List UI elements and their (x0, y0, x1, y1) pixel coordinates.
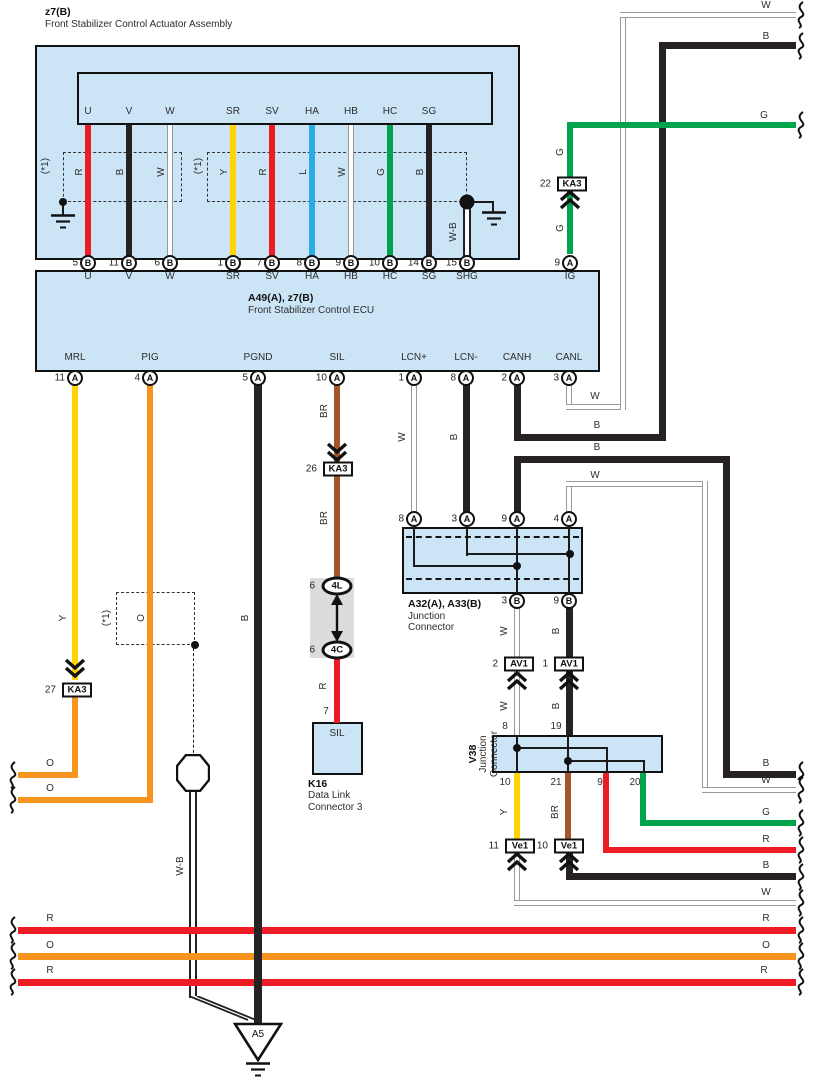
label-sv-17: SV (265, 107, 278, 117)
a32-int-2h (466, 553, 571, 555)
pin-circle-1B-3: B (225, 255, 241, 271)
label-connector-6: Connector (408, 623, 454, 633)
connector-num-av1-1: 1 (532, 659, 548, 670)
junction-dot-5 (513, 744, 521, 752)
pin-circle-7B-4: B (264, 255, 280, 271)
label-w-71: W (761, 1, 770, 11)
label-connector-12: Connector (490, 731, 500, 777)
label-g-54: G (556, 148, 566, 156)
chevron-down-sil (325, 442, 349, 462)
label-sr-25: SR (226, 272, 240, 282)
ground-symbol-1 (49, 214, 77, 231)
wire-j3b-w (514, 608, 520, 658)
wire-lcnm-b (463, 382, 470, 514)
pin-number-11A-11: 11 (49, 373, 65, 384)
label-hc-29: HC (383, 272, 397, 282)
wire-hb-w (348, 125, 354, 258)
wire-v38-br (565, 773, 571, 841)
chevron-up-av1-1 (557, 671, 581, 691)
pin-circle-10A-14: A (329, 370, 345, 386)
break-r-right (792, 835, 810, 865)
v38-int-2h (567, 760, 645, 762)
connector-ve1-10: Ve1 (554, 839, 584, 854)
junction-dot-6 (564, 757, 572, 765)
wire-sil-br-2 (334, 475, 340, 580)
pin-number-1A-15: 1 (388, 373, 404, 384)
label-a49-a-z7-b--2: A49(A), z7(B) (248, 293, 313, 304)
wire-j9a-b-v2 (723, 456, 730, 778)
label-y-68: Y (500, 809, 510, 816)
label-b-72: B (763, 32, 770, 42)
pin-circle-8B-5: B (304, 255, 320, 271)
a32-int-1h (413, 565, 519, 567)
pin-number-6B-2: 6 (144, 258, 160, 269)
break-g-top (792, 110, 810, 140)
break-w-right-1 (792, 775, 810, 805)
label-r-63: R (319, 682, 329, 689)
label-a32-a-a33-b--4: A32(A), A33(B) (408, 599, 481, 610)
label-b-76: B (594, 443, 601, 453)
pin-number-15B-9: 15 (441, 258, 457, 269)
noise-filter-octagon (176, 754, 210, 792)
label-o-59: O (137, 614, 147, 622)
pin-number-3A-20: 3 (441, 514, 457, 525)
connector-num-ve1-10: 10 (532, 841, 548, 852)
junction-dot-4 (566, 550, 574, 558)
chevron-down-mrl (63, 658, 87, 678)
a32-int-2v (466, 527, 468, 556)
pin-number-14B-8: 14 (403, 258, 419, 269)
label-l-46: L (299, 169, 309, 175)
break-g-right (792, 808, 810, 838)
pin-number-11B-1: 11 (103, 258, 119, 269)
label-sg-30: SG (422, 272, 436, 282)
label-w-74: W (590, 392, 599, 402)
pin-circle-11A-11: A (67, 370, 83, 386)
break-w-right-2 (792, 888, 810, 918)
label-y-58: Y (59, 615, 69, 622)
label-9-96: 9 (597, 778, 603, 788)
wire-sr-y (230, 125, 236, 258)
option-dashed-box-1 (63, 152, 182, 202)
wire-bottom-o (12, 953, 804, 960)
pin-circle-3A-18: A (561, 370, 577, 386)
break-r2-right (792, 967, 810, 997)
pin-number-5A-13: 5 (232, 373, 248, 384)
label-19-93: 19 (550, 722, 561, 732)
label-sv-26: SV (265, 272, 278, 282)
wire-canh-b-v1 (514, 382, 521, 439)
wire-v-b (126, 125, 132, 258)
pin-circle-9B-24: B (561, 593, 577, 609)
wire-ka3-27-o-v (72, 694, 78, 778)
label-r-91: R (46, 966, 53, 976)
label-hc-20: HC (383, 107, 397, 117)
double-arrow-shield (329, 594, 345, 642)
label-10-94: 10 (499, 778, 510, 788)
wire-lcnp-w (411, 382, 417, 514)
wire-pgnd-b (254, 384, 262, 1031)
pin-circle-15B-9: B (459, 255, 475, 271)
connector-av1-2: AV1 (504, 657, 534, 672)
connector-num-av1-2: 2 (482, 659, 498, 670)
wire-ve1-10-b-h (566, 873, 804, 880)
connector-ka3-27: KA3 (62, 683, 92, 698)
label-w-64: W (500, 626, 510, 635)
label-b-60: B (241, 615, 251, 622)
connector-num-ka3-22: 22 (535, 179, 551, 190)
v38-int-1h (516, 747, 608, 749)
label-canl-40: CANL (556, 353, 583, 363)
pin-circle-9A-10: A (562, 255, 578, 271)
wire-v38-g-v (640, 773, 646, 826)
wire-ig-g-h (567, 122, 803, 128)
wire-j9a-b-v1 (514, 456, 521, 514)
label-hb-28: HB (344, 272, 358, 282)
label-20-97: 20 (629, 778, 640, 788)
label-y-44: Y (220, 169, 230, 176)
break-w-top (792, 0, 810, 30)
label-b-42: B (116, 169, 126, 176)
label-sil-36: SIL (329, 353, 344, 363)
break-o-left-2 (4, 785, 22, 815)
wire-canl-w-h1 (566, 404, 626, 410)
ground-symbol-a5 (244, 1062, 272, 1079)
pin-circle-8A-19: A (406, 511, 422, 527)
pin-number-4A-22: 4 (543, 514, 559, 525)
wire-canh-b-h2 (659, 42, 804, 49)
pin-number-10A-14: 10 (311, 373, 327, 384)
label-b-78: B (763, 759, 770, 769)
v38-int-1v (516, 735, 518, 773)
label-ig-32: IG (565, 272, 576, 282)
label-b-75: B (594, 421, 601, 431)
ground-point-a5: A5 (233, 1022, 283, 1062)
label-w-66: W (500, 701, 510, 710)
wire-canl-w-v2 (620, 12, 626, 410)
pin-number-9A-21: 9 (491, 514, 507, 525)
wire-wb-octagon (189, 790, 197, 998)
label-w-56: W (398, 432, 408, 441)
wire-mrl-y (72, 384, 78, 680)
pin-circle-10B-7: B (382, 255, 398, 271)
option-dashed-box-3 (116, 592, 195, 645)
wire-ha-l (309, 125, 315, 258)
pin-number-9A-10: 9 (544, 258, 560, 269)
wire-v38-y (514, 773, 520, 841)
pin-number-3A-18: 3 (543, 373, 559, 384)
label-sg-21: SG (422, 107, 436, 117)
label-junction-11: Junction (479, 735, 489, 772)
pin-circle-5B-0: B (80, 255, 96, 271)
wire-k16-r (334, 657, 340, 723)
label-o-87: O (46, 759, 54, 769)
wire-bottom-r2 (12, 979, 804, 986)
label-w-24: W (165, 272, 174, 282)
dashed-link-octagon (193, 648, 194, 758)
a32-busbar-1 (406, 536, 579, 538)
junction-dot-1 (460, 195, 475, 210)
a32-int-1v (413, 527, 415, 567)
pin-number-9B-6: 9 (325, 258, 341, 269)
v38-int-2v2 (643, 760, 645, 773)
pin-number-8A-16: 8 (440, 373, 456, 384)
pin-circle-9A-21: A (509, 511, 525, 527)
pin-number-3B-23: 3 (491, 596, 507, 607)
wire-sv-r (269, 125, 275, 258)
junction-dot-3 (513, 562, 521, 570)
label-lcn--38: LCN- (454, 353, 477, 363)
break-r2-left (4, 967, 22, 997)
label-v-14: V (126, 107, 133, 117)
label-8-92: 8 (502, 722, 508, 732)
label-b-67: B (552, 703, 562, 710)
label-br-69: BR (551, 805, 561, 819)
wire-pig-o-v (147, 384, 153, 803)
label-g-48: G (377, 168, 387, 176)
wire-u-r (85, 125, 91, 258)
pin-circle-14B-8: B (421, 255, 437, 271)
label-k16-7: K16 (308, 779, 327, 790)
label--1--51: (*1) (41, 158, 51, 174)
label-w-77: W (590, 471, 599, 481)
pin-number-8A-19: 8 (388, 514, 404, 525)
label-r-89: R (46, 914, 53, 924)
pin-number-1B-3: 1 (207, 258, 223, 269)
label-sil-99: SIL (329, 729, 344, 739)
label-connector-3-9: Connector 3 (308, 803, 362, 813)
label-ha-27: HA (305, 272, 319, 282)
connector-num-4l-6: 6 (299, 581, 315, 592)
wire-hc-g (387, 125, 393, 258)
label-front-stabilizer-control-actuator-assembly-1: Front Stabilizer Control Actuator Assemb… (45, 20, 232, 30)
wire-canh-b-h1 (514, 434, 666, 441)
label-pgnd-35: PGND (244, 353, 273, 363)
label-junction-5: Junction (408, 612, 445, 622)
connector-av1-1: AV1 (554, 657, 584, 672)
connector-num-ve1-11: 11 (483, 841, 499, 852)
label-7-98: 7 (323, 707, 329, 717)
pin-circle-5A-13: A (250, 370, 266, 386)
chevron-up-av1-2 (505, 671, 529, 691)
junction-dot-2 (191, 641, 199, 649)
label-hb-19: HB (344, 107, 358, 117)
label-canh-39: CANH (503, 353, 531, 363)
pin-number-9B-24: 9 (543, 596, 559, 607)
label-g-80: G (762, 808, 770, 818)
connector-num-ka3-26: 26 (301, 464, 317, 475)
label-v-23: V (126, 272, 133, 282)
pin-circle-2A-17: A (509, 370, 525, 386)
wire-v38-r-h (603, 847, 804, 853)
label-b-57: B (450, 434, 460, 441)
label-b-65: B (552, 628, 562, 635)
pin-circle-4A-12: A (142, 370, 158, 386)
label-r-45: R (259, 168, 269, 175)
label-data-link-8: Data Link (308, 791, 350, 801)
pin-circle-4A-22: A (561, 511, 577, 527)
connector-4l-6: 4L (322, 577, 353, 596)
wiring-diagram-canvas: A5B5B11B6B1B7B8B9B10B14B15A9A11A4A5A10A1… (0, 0, 818, 1087)
wire-j9a-b-h1 (514, 456, 730, 463)
label-u-13: U (84, 107, 91, 117)
wire-bottom-r1 (12, 927, 804, 934)
label-w-79: W (761, 776, 770, 786)
label-b-82: B (763, 861, 770, 871)
junction-dot-0 (59, 198, 67, 206)
pin-circle-11B-1: B (121, 255, 137, 271)
label-front-stabilizer-control-ecu-3: Front Stabilizer Control ECU (248, 306, 374, 316)
pin-number-7B-4: 7 (246, 258, 262, 269)
wire-sg-b (426, 125, 432, 258)
label-v38-10: V38 (468, 745, 479, 764)
wire-v38-r-v (603, 773, 609, 853)
label-r-84: R (762, 914, 769, 924)
wire-j4a-w-v2 (702, 481, 708, 793)
connector-num-4c-6: 6 (299, 645, 315, 656)
label-r-41: R (75, 168, 85, 175)
v38-int-2v (567, 735, 569, 773)
wire-shg-wb (463, 206, 471, 256)
label--1--52: (*1) (194, 158, 204, 174)
label-r-86: R (760, 966, 767, 976)
connector-ka3-22: KA3 (557, 177, 587, 192)
ground-symbol-2 (480, 211, 508, 228)
wire-canh-b-v2 (659, 42, 666, 441)
a32-busbar-2 (406, 578, 579, 580)
label-g-55: G (556, 224, 566, 232)
label-lcn+-37: LCN+ (401, 353, 427, 363)
pin-circle-3A-20: A (459, 511, 475, 527)
pin-circle-9B-6: B (343, 255, 359, 271)
label-mrl-33: MRL (64, 353, 85, 363)
connector-num-ka3-27: 27 (40, 685, 56, 696)
label-u-22: U (84, 272, 91, 282)
connector-ka3-26: KA3 (323, 462, 353, 477)
wire-j4a-w-h1 (566, 481, 708, 487)
label-w-83: W (761, 888, 770, 898)
wire-canl-w-h2 (620, 12, 804, 18)
label-o-88: O (46, 784, 54, 794)
wire-ka3-27-o-h (15, 772, 75, 778)
pin-circle-8A-16: A (458, 370, 474, 386)
label-w-47: W (338, 167, 348, 176)
connector-4c-6: 4C (322, 641, 353, 660)
wire-v38-g-h (640, 820, 804, 826)
chevron-up-ka3-22 (558, 190, 582, 210)
wire-j9b-b (566, 608, 573, 658)
break-b-top (792, 31, 810, 61)
label-pig-34: PIG (141, 353, 158, 363)
pin-number-8B-5: 8 (286, 258, 302, 269)
label-o-90: O (46, 941, 54, 951)
label-o-85: O (762, 941, 770, 951)
label-br-61: BR (320, 404, 330, 418)
label-g-73: G (760, 111, 768, 121)
label-b-49: B (416, 169, 426, 176)
svg-text:A5: A5 (252, 1029, 265, 1040)
label-br-62: BR (320, 511, 330, 525)
connector-ve1-11: Ve1 (505, 839, 535, 854)
wb-diagonal-jog (188, 996, 260, 1024)
label-w-43: W (157, 167, 167, 176)
label-21-95: 21 (550, 778, 561, 788)
label-w-15: W (165, 107, 174, 117)
wire-pig-o-h (15, 797, 150, 803)
pin-number-5B-0: 5 (62, 258, 78, 269)
chevron-up-ve1-11 (505, 852, 529, 872)
label-w-b-50: W-B (449, 222, 459, 241)
pin-number-10B-7: 10 (364, 258, 380, 269)
pin-number-4A-12: 4 (124, 373, 140, 384)
label-ha-18: HA (305, 107, 319, 117)
label-r-81: R (762, 835, 769, 845)
label--1--53: (*1) (102, 610, 112, 626)
label-shg-31: SHG (456, 272, 478, 282)
wire-ve1-11-w-h (514, 900, 804, 906)
label-sr-16: SR (226, 107, 240, 117)
actuator-inner-box (77, 72, 493, 125)
wire-j4a-w-h2 (702, 787, 804, 793)
pin-circle-1A-15: A (406, 370, 422, 386)
wire-w-w (167, 125, 173, 258)
label-z7-b--0: z7(B) (45, 7, 71, 18)
pin-circle-3B-23: B (509, 593, 525, 609)
pin-number-2A-17: 2 (491, 373, 507, 384)
label-w-b-70: W-B (176, 856, 186, 875)
chevron-up-ve1-10 (557, 852, 581, 872)
pin-circle-6B-2: B (162, 255, 178, 271)
